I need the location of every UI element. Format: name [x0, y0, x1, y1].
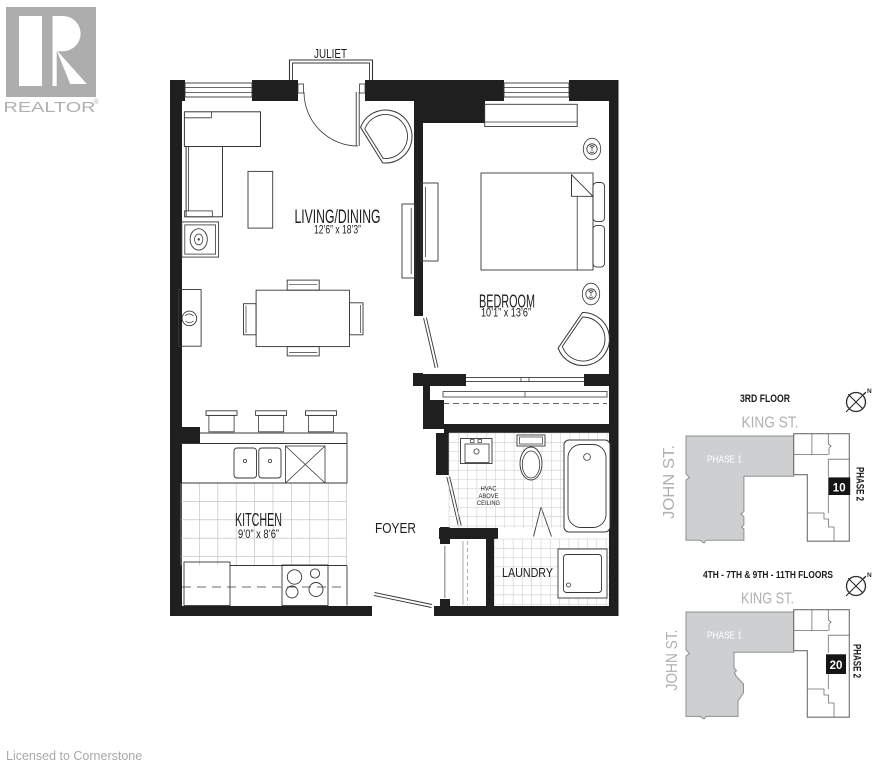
svg-text:®: ® [93, 97, 99, 106]
svg-text:N: N [867, 388, 872, 395]
svg-text:KING ST.: KING ST. [742, 415, 799, 432]
svg-text:JOHN ST.: JOHN ST. [661, 445, 678, 519]
svg-text:FOYER: FOYER [375, 521, 416, 537]
svg-text:ABOVE: ABOVE [479, 493, 499, 500]
svg-text:CEILING: CEILING [477, 500, 500, 507]
svg-text:3RD FLOOR: 3RD FLOOR [740, 393, 790, 405]
svg-text:PHASE 1: PHASE 1 [707, 454, 742, 466]
svg-text:KING ST.: KING ST. [741, 591, 794, 608]
svg-text:20: 20 [830, 660, 843, 672]
svg-text:12’6” x 18’3”: 12’6” x 18’3” [314, 223, 361, 237]
svg-text:KITCHEN: KITCHEN [235, 509, 282, 530]
svg-text:10’1” x 13’6”: 10’1” x 13’6” [481, 308, 531, 320]
svg-text:PHASE 2: PHASE 2 [851, 644, 863, 678]
svg-text:JULIET: JULIET [314, 47, 347, 61]
svg-text:LAUNDRY: LAUNDRY [502, 565, 553, 580]
svg-text:4TH - 7TH & 9TH - 11TH FLOORS: 4TH - 7TH & 9TH - 11TH FLOORS [703, 569, 833, 581]
svg-text:Licensed to Cornerstone: Licensed to Cornerstone [6, 749, 142, 763]
svg-text:JOHN ST.: JOHN ST. [664, 630, 681, 691]
svg-text:PHASE 1: PHASE 1 [707, 630, 742, 642]
svg-text:N: N [867, 572, 872, 579]
svg-text:HVAC: HVAC [481, 486, 498, 493]
svg-text:9’0” x 8’6”: 9’0” x 8’6” [238, 529, 279, 541]
svg-text:REALTOR: REALTOR [4, 100, 96, 116]
svg-text:PHASE 2: PHASE 2 [854, 467, 866, 501]
svg-text:10: 10 [833, 483, 846, 495]
